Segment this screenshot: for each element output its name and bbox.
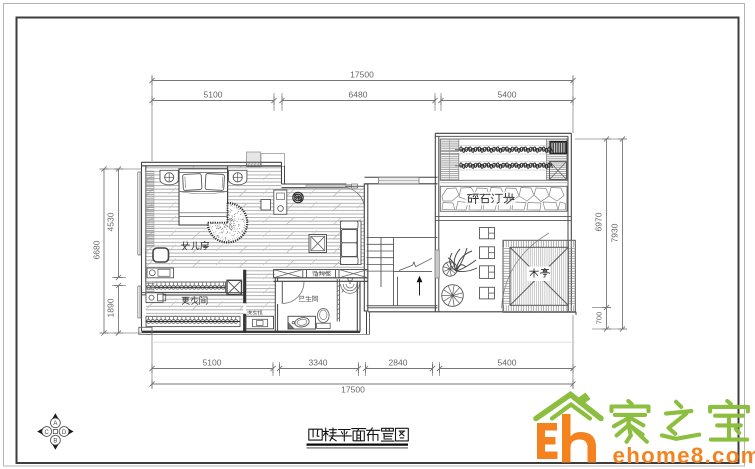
svg-text:B: B (53, 439, 57, 445)
svg-text:6480: 6480 (349, 90, 368, 100)
svg-text:4530: 4530 (106, 212, 116, 231)
svg-text:6680: 6680 (92, 240, 102, 259)
svg-text:700: 700 (595, 312, 604, 325)
svg-text:5400: 5400 (498, 358, 517, 368)
svg-text:5400: 5400 (498, 90, 517, 100)
svg-text:C: C (45, 430, 50, 436)
svg-text:3340: 3340 (309, 358, 328, 368)
svg-text:1890: 1890 (106, 298, 116, 317)
svg-text:D: D (62, 430, 67, 436)
svg-text:5100: 5100 (203, 358, 222, 368)
svg-text:17500: 17500 (350, 70, 374, 80)
svg-text:A: A (53, 421, 57, 427)
svg-text:7930: 7930 (610, 223, 620, 242)
svg-text:2840: 2840 (389, 358, 408, 368)
svg-text:ehome8.com: ehome8.com (613, 443, 755, 468)
svg-text:17500: 17500 (341, 385, 365, 395)
svg-text:6970: 6970 (594, 212, 604, 231)
svg-text:5100: 5100 (204, 90, 223, 100)
